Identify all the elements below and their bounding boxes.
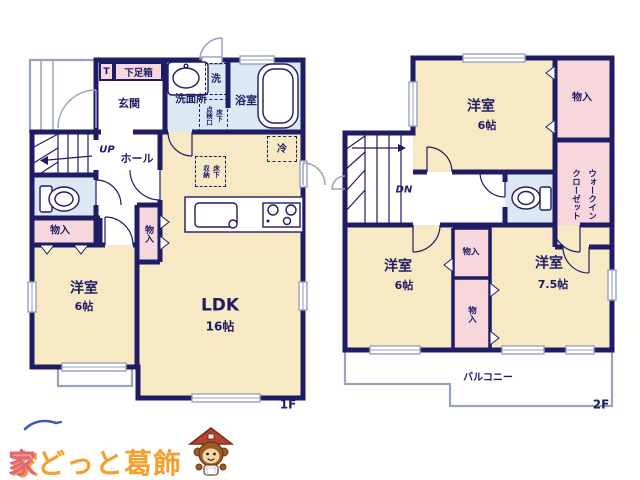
porch-outline (30, 60, 96, 132)
label-ldk: LDK (201, 297, 239, 316)
laundry-label: 洗 (211, 74, 221, 85)
label-bedroom-1f-size: 6帖 (75, 301, 94, 313)
toilet-icon-2f (512, 187, 551, 210)
washbasin-icon (168, 62, 208, 95)
logo-text-ie: 家 (8, 447, 37, 480)
stairs-up-icon (32, 132, 92, 175)
floor-plan-drawing (0, 0, 640, 480)
underfloor-label-col1: 床下 (211, 165, 221, 178)
floor1-label: 1F (280, 398, 297, 411)
mascot-icon (188, 426, 234, 478)
stairs-down-icon (345, 133, 406, 225)
underfloor-label-col2: 収納 (201, 165, 211, 178)
floor-plan-page: T 下足箱 玄関 洗面所 浴室 UP ホール 物入 物入 洋室 6帖 LDK 1… (0, 0, 640, 480)
label-up: UP (99, 145, 114, 156)
label-storage-1f-mid: 物入 (138, 208, 159, 260)
label-balcony: バルコニー (463, 373, 513, 384)
label-storage-2f-top: 物入 (572, 93, 592, 104)
logo-text-katsushika: 葛飾 (124, 447, 182, 480)
laundry-box: 洗 (205, 63, 227, 95)
label-ldk-size: 16帖 (206, 320, 235, 333)
label-hall: ホール (121, 153, 154, 165)
label-storage-2f-mid-upper: 物入 (462, 248, 479, 257)
shoe-box: 下足箱 (114, 62, 163, 81)
label-bedroom-1f: 洋室 (70, 281, 98, 296)
toilet-mark-box: T (99, 62, 114, 81)
label-storage-1f: 物入 (50, 226, 70, 237)
inspection-label-col1: 床下 (214, 106, 224, 126)
label-bedroom-2f-top-size: 6帖 (478, 120, 497, 132)
label-dn: DN (396, 185, 413, 196)
logo-text: 家どっと葛飾 (8, 450, 182, 478)
label-storage-2f-mid-lower: 物入 (463, 293, 480, 335)
underfloor-inspection-box: 床下 点検口 (199, 99, 228, 132)
label-bedroom-2f-left-size: 6帖 (395, 280, 414, 292)
underfloor-storage-box: 床下 収納 (195, 156, 226, 187)
label-bedroom-2f-right: 洋室 (535, 256, 563, 271)
stove-icon (263, 203, 300, 227)
toilet-mark-label: T (103, 67, 109, 77)
bathtub-icon (258, 64, 298, 128)
walk-in-closet-label: ウォークイン クローゼット (557, 146, 610, 242)
label-bedroom-2f-left: 洋室 (384, 259, 412, 274)
logo-text-dotto: どっと (37, 447, 124, 480)
floor2-label: 2F (593, 398, 610, 411)
label-bedroom-2f-right-size: 7.5帖 (538, 279, 569, 291)
toilet-icon (40, 186, 79, 212)
label-bedroom-2f-top: 洋室 (467, 99, 495, 114)
inspection-label-col2: 点検口 (204, 106, 214, 126)
fridge-box: 冷 (267, 136, 297, 162)
label-bathroom: 浴室 (235, 95, 257, 107)
shoe-box-label: 下足箱 (124, 65, 153, 79)
logo-swoosh-icon (22, 414, 64, 432)
company-logo: 家どっと葛飾 (8, 422, 234, 478)
fridge-label: 冷 (277, 144, 287, 155)
label-entrance: 玄関 (118, 98, 140, 110)
